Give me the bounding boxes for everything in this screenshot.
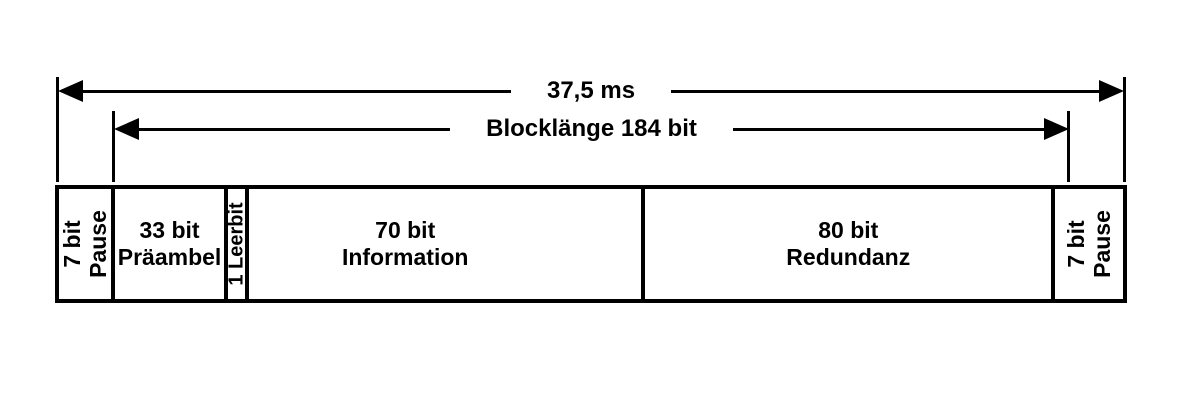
- segment-pause-left: 7 bit Pause: [59, 189, 111, 299]
- segment-information: 70 bit Information: [245, 189, 641, 299]
- frame-timing-diagram: 37,5 ms Blocklänge 184 bit 7 bit Pause 3…: [0, 0, 1200, 400]
- segment-label: 80 bit Redundanz: [786, 217, 910, 271]
- segment-leerbit: 1 Leerbit: [224, 189, 245, 299]
- dimension-line-segment: [733, 128, 1044, 131]
- segment-label: 7 bit Pause: [1063, 210, 1115, 278]
- blocklength-label: Blocklänge 184 bit: [450, 117, 733, 141]
- arrowhead-right-icon: [1044, 118, 1069, 140]
- segment-pause-right: 7 bit Pause: [1051, 189, 1123, 299]
- segment-label: 1 Leerbit: [227, 202, 247, 285]
- dimension-line-segment: [83, 90, 511, 93]
- arrowhead-left-icon: [114, 118, 139, 140]
- segment-praeambel: 33 bit Präambel: [111, 189, 224, 299]
- segment-label: 33 bit Präambel: [118, 217, 222, 271]
- segment-redundanz: 80 bit Redundanz: [641, 189, 1051, 299]
- segment-label: 7 bit Pause: [59, 210, 111, 278]
- arrowhead-right-icon: [1099, 80, 1124, 102]
- segment-label: 70 bit Information: [342, 217, 469, 271]
- duration-label: 37,5 ms: [511, 79, 671, 103]
- dimension-line-segment: [671, 90, 1099, 93]
- duration-dimension-line: 37,5 ms: [58, 79, 1124, 103]
- dimension-line-segment: [139, 128, 450, 131]
- arrowhead-left-icon: [58, 80, 83, 102]
- blocklength-dimension-line: Blocklänge 184 bit: [114, 117, 1069, 141]
- frame-bar: 7 bit Pause 33 bit Präambel 1 Leerbit 70…: [55, 185, 1127, 303]
